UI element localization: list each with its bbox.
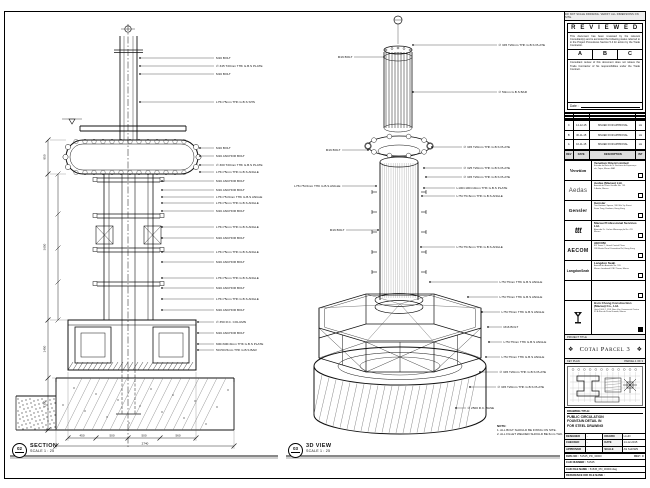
contractor-marker [638, 327, 644, 333]
mps-logo: ttt [575, 226, 582, 235]
callout-label: M16 BOLT [330, 228, 345, 232]
contractor-address: 57-A Rua da Praia Grande, Macau [594, 311, 643, 314]
revision-row: A16-11-15ISSUED FOR APPROVALLH [565, 140, 645, 149]
do-not-scale-strip: DO NOT SCALE DRAWING. VERIFY ALL DIMENSI… [565, 12, 645, 21]
callout-label: L75×75mm THK G.B.S ANGLE [502, 355, 545, 359]
reviewed-body1: This document has been reviewed by the r… [568, 33, 642, 49]
callout-label: ∅ 345 T20mm THK G.B.S PLATE [216, 64, 263, 68]
consultant-address: 5 Andar, Macau [594, 188, 643, 191]
callout-label: L75×75mm THK G.B.S ANGLE [500, 280, 543, 284]
callout-label: ∅ 50mm G.B.S BAR [499, 90, 528, 94]
callout-label: 560 [175, 434, 180, 438]
consultant-checkbox [638, 193, 644, 199]
callout-label: L75×75mm THK G.B.S ANGLE [216, 201, 259, 205]
callout-label: 500 [109, 434, 114, 438]
tag-divider [291, 452, 300, 453]
contractor-logo-icon [573, 311, 583, 325]
callout-label: 450 [79, 434, 84, 438]
project-name: Cotai Parcel 3 [580, 346, 631, 353]
reviewed-status-options: A B C [568, 49, 642, 60]
callout-label: M16 ANCHOR BOLT [216, 154, 245, 158]
drawing-title-line: FOR STEEL DRAWING [567, 424, 643, 428]
dwg-no: 51545_PD_30000 [580, 455, 602, 458]
consultant-checkbox [638, 233, 644, 239]
callout-label: M16 BOLT [504, 325, 519, 329]
callout-label: L75×75×6mm THK G.B.S ANGLE [457, 194, 503, 198]
consultant-row-mps: ttt Macau Professional Services Ltd. Ala… [565, 221, 645, 241]
callout-label: M16 ANCHOR BOLT [216, 308, 245, 312]
reviewed-date-row: Date : [568, 102, 642, 109]
consultant-row-aecom: AECOM AECOM 8/F Tower 2, Grand Central P… [565, 241, 645, 261]
cad-number: 51545 [587, 461, 594, 464]
status-option-c: C [618, 50, 642, 59]
rev-value: C [642, 455, 644, 458]
view3d-scale: SCALE 1 : 25 [306, 449, 331, 453]
consultant-checkbox [638, 213, 644, 219]
date-label: Date : [570, 104, 579, 108]
consultant-address: s/n, Taipa, Macau SAR [594, 168, 643, 171]
consultant-address: Kwun Tong, Kowloon, Hong Kong [594, 208, 643, 211]
callout-label: L75×75mm THK G.B.S ANGLE [216, 276, 259, 280]
callout-label: L75×75×6mm THK G.B.S ANGLE [294, 184, 340, 188]
callout-label: M16 ANCHOR BOLT [216, 188, 245, 192]
section-tag-number: 02 [17, 447, 22, 452]
callout-label: ∅ 345 T20mm THK G.B.S PLATE [500, 370, 547, 374]
contractor-name: Hsin Chong Construction (Macau) Co., Ltd… [594, 302, 643, 309]
consultant-name: Macau Professional Services Ltd. [594, 222, 643, 229]
callout-label: ∅ 345 T20mm THK G.B.S PLATE [464, 175, 511, 179]
callout-label: M16 ANCHOR BOLT [216, 236, 245, 240]
callout-label: M16 ANCHOR BOLT [216, 260, 245, 264]
drawing-title-label: DRAWING TITLE: [567, 409, 643, 414]
langdonseah-logo: LangdonSeah [567, 269, 589, 273]
status-option-a: A [568, 50, 593, 59]
notes-block: NOTE: 1. ALL BOLT SHOULD BE FIXING ON SI… [497, 425, 569, 436]
consultant-checkbox [638, 253, 644, 259]
key-plan-label: KEY PLAN [567, 360, 580, 363]
callout-label: M16 BOLT [338, 55, 353, 59]
status-option-b: B [593, 50, 618, 59]
tag-divider [15, 452, 24, 453]
callout-label: ∅ 325 T20mm THK G.B.S PLATE [464, 166, 511, 170]
section-scale: SCALE 1 : 25 [30, 449, 57, 453]
callout-label: 50×50×5mm THK G.B.S BAR [216, 348, 257, 352]
consultant-checkbox [638, 273, 644, 279]
callout-label: L75×75×6mm THK G.B.S ANGLE [216, 195, 262, 199]
ref-file-label: REFERENCE DIR FILE NAME : [566, 474, 605, 477]
callout-label: L75×75mm THK G.B.S ANGLE [216, 297, 259, 301]
revision-row: C14-12-15ISSUED FOR APPROVALLH [565, 121, 645, 130]
callout-label: L75×75mm THK G.B.S ANGLE [500, 295, 543, 299]
callout-label: L75×75mm THK G.B.S ANGLE [216, 225, 259, 229]
callout-label: M16 ANCHOR BOLT [216, 331, 245, 335]
revision-table: C14-12-15ISSUED FOR APPROVALLH B30-11-15… [565, 113, 645, 161]
reviewed-title: R E V I E W E D [568, 24, 642, 33]
callout-label: 600×600×9mm THK G.B.S PLATE [216, 342, 263, 346]
callout-label: ∅ 2500 R.C. BASE [468, 406, 495, 410]
revision-empty-rows [565, 113, 645, 121]
consultant-address: 138 Shatin Rural Committee Rd, Hong Kong [594, 248, 643, 251]
gensler-logo: Gensler [569, 208, 588, 213]
venetian-logo: Venetian [570, 168, 587, 173]
callout-label: M16 ANCHOR BOLT [216, 179, 245, 183]
aecom-logo: AECOM [567, 248, 588, 254]
consultant-row-empty [565, 281, 645, 301]
section-view-label: 02 SECTION SCALE 1 : 25 [12, 443, 57, 458]
callout-label: L75×75×6mm THK G.B.S ANGLE [457, 245, 503, 249]
callout-label: L75×75mm THK G.B.S ANGLE [502, 310, 545, 314]
view3d-tag-number: 03 [293, 447, 298, 452]
callout-label: L75×75mm THK G.B.S ANGLE [216, 250, 259, 254]
drawing-sheet: 8503650145013004505005005602740M16 BOLT∅… [0, 0, 650, 488]
callout-label: M16 BOLT [326, 148, 341, 152]
callout-label: 2740 [142, 442, 149, 446]
callout-label: L75×75mm THK G.B.S ANGLE [504, 340, 547, 344]
ornament-icon: ❖ [568, 346, 573, 353]
drawing-number-block: DWG NO : 51545_PD_30000 REV : C CAD NUMB… [565, 454, 645, 478]
consultant-row-langdonseah: LangdonSeah Langdon Seah Avenida da Amiz… [565, 261, 645, 281]
reviewed-stamp: R E V I E W E D This document has been r… [565, 21, 645, 113]
note-line: 2. ALL FILLET WELDED SHOULD BE 6mm THK. [497, 433, 569, 437]
key-plan-parcel-label: PARCEL 1 OF 3 [624, 360, 643, 363]
key-plan-drawing [567, 366, 643, 406]
callout-label: ∅ 345 T20mm THK G.B.S PLATE [498, 385, 545, 389]
consultant-row-gensler: Gensler Gensler Two Harbour Square, 180 … [565, 201, 645, 221]
cad-file-name: 51545_PD_30000.dwg [590, 468, 617, 471]
callout-label: ∅ 350 R.C. COLUMN [216, 320, 246, 324]
callout-label: M16 BOLT [216, 72, 231, 76]
signoff-table: DESIGNED-DRAWNLLHO CHECKED-DATE14-12-201… [565, 434, 645, 454]
callout-label: M16 BOLT [216, 146, 231, 150]
aedas-logo: Aedas [569, 188, 588, 194]
callout-label: ∅ 345 T20mm THK G.B.S PLATE [499, 43, 546, 47]
section-tag: 02 [12, 443, 27, 458]
revision-row: B30-11-15ISSUED FOR APPROVALLH [565, 131, 645, 140]
callout-label: L75×75mm THK G.B.S ANGLE [216, 170, 259, 174]
date-line [581, 104, 640, 108]
consultant-address: Macau Landmark ICBC Tower, Macau [594, 268, 643, 271]
consultant-checkbox [638, 173, 644, 179]
contractor-block: Hsin Chong Construction (Macau) Co., Ltd… [565, 301, 645, 335]
callout-label: ∅ 345 T20mm THK G.B.S PLATE [464, 145, 511, 149]
reviewed-body2: Consultant review of this document does … [568, 60, 642, 73]
consultant-row-aedas: Aedas Aedas (Macau) Ltd. Avenida da Prai… [565, 181, 645, 201]
ornament-icon: ❖ [637, 346, 642, 353]
title-block: DO NOT SCALE DRAWING. VERIFY ALL DIMENSI… [564, 11, 646, 479]
callout-label: M16 ANCHOR BOLT [216, 286, 245, 290]
cad-file-label: CAD FILE NAME : [566, 468, 589, 471]
view3d-tag: 03 [288, 443, 303, 458]
key-plan-block: KEY PLAN PARCEL 1 OF 3 [565, 359, 645, 408]
revision-header: REVDATEDESCRIPTIONINT [565, 150, 645, 160]
callout-label: L75×75mm THK G.B.S SHS [216, 100, 255, 104]
consultant-address: Macau [594, 231, 643, 234]
consultant-checkbox [638, 293, 644, 299]
callout-label: ∅ 300 T20mm THK G.B.S PLATE [216, 163, 263, 167]
callout-label: L100×100×10mm THK G.B.S PLATE [457, 186, 508, 190]
consultant-row-venetian: Venetian Venetian Orient Limited Estrada… [565, 161, 645, 181]
callout-label: 1300 [43, 400, 47, 407]
project-title-block: PROJECT TITLE ❖ Cotai Parcel 3 ❖ [565, 335, 645, 359]
drawing-canvas: 8503650145013004505005005602740M16 BOLT∅… [0, 0, 650, 488]
callout-label: M16 BOLT [216, 56, 231, 60]
drawing-title-block: DRAWING TITLE: PUBLIC CIRCULATION FOUNTA… [565, 408, 645, 434]
callout-label: 850 [43, 154, 47, 159]
callout-label: 3650 [43, 243, 47, 250]
callout-label: 500 [141, 434, 146, 438]
callout-label: 1450 [43, 345, 47, 352]
callout-label: M16 ANCHOR BOLT [216, 209, 245, 213]
cad-number-label: CAD NUMBER : [566, 461, 586, 464]
dwg-no-label: DWG NO : [566, 455, 579, 458]
view3d-label: 03 3D VIEW SCALE 1 : 25 [288, 443, 331, 458]
